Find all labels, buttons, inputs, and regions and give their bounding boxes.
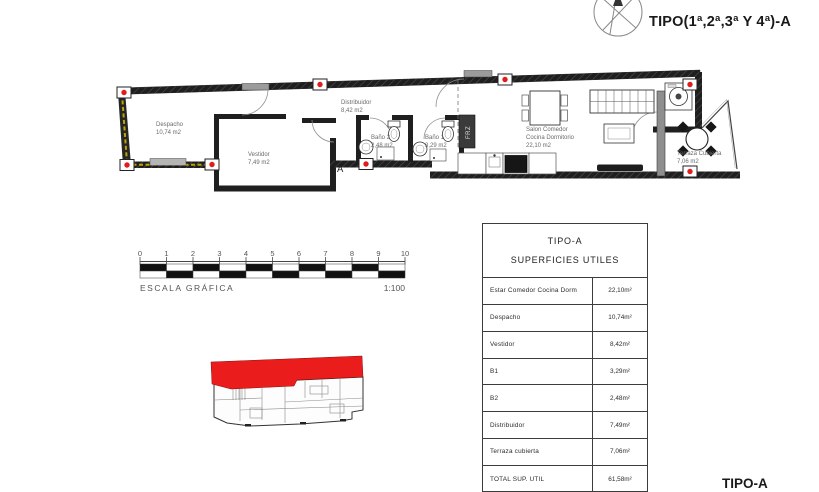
row-value: 10,74m² <box>592 305 647 331</box>
row-label: B1 <box>483 359 592 385</box>
bathroom-fixtures <box>359 121 454 161</box>
tv-sideboard <box>593 165 648 173</box>
room-label: Terraza Cubierta <box>677 151 722 157</box>
sheet-title: TIPO(1ª,2ª,3ª Y 4ª)-A <box>649 14 791 30</box>
column-marker <box>120 160 134 171</box>
scale-bar-blocks <box>140 264 405 278</box>
room-label: Baño 1 <box>425 135 445 141</box>
floor-plan-drawing: FRZ <box>0 0 819 492</box>
svg-text:5: 5 <box>270 249 274 258</box>
table-row: TOTAL SUP. UTIL 61,58m² <box>483 466 647 492</box>
drawing-sheet: FRZ <box>0 0 819 492</box>
room-area: 7,49 m2 <box>248 160 270 166</box>
shower-tray <box>430 149 446 161</box>
room-area: 10,74 m2 <box>156 130 182 136</box>
row-label: Distribuidor <box>483 412 592 438</box>
table-row: Vestidor 8,42m² <box>483 332 647 359</box>
column-marker <box>117 87 131 98</box>
svg-text:4: 4 <box>244 249 248 258</box>
table-row: B1 3,29m² <box>483 359 647 386</box>
fridge: FRZ <box>459 115 475 148</box>
row-value: 22,10m² <box>592 278 647 304</box>
row-label: Estar Comedor Cocina Dorm <box>483 278 592 304</box>
column-marker <box>205 159 219 170</box>
column-marker <box>359 159 373 170</box>
scale-bar-label: ESCALA GRÁFICA <box>140 283 234 293</box>
column-marker <box>683 79 697 90</box>
svg-text:9: 9 <box>376 249 380 258</box>
row-label: Terraza cubierta <box>483 439 592 465</box>
compass-icon <box>594 0 642 36</box>
room-area: 2,48 m2 <box>371 143 393 149</box>
row-value: 3,29m² <box>592 359 647 385</box>
terrace-table <box>686 128 708 150</box>
type-footer-label: TIPO-A <box>722 476 768 491</box>
room-area: 3,29 m2 <box>425 143 447 149</box>
table-row: Distribuidor 7,49m² <box>483 412 647 439</box>
side-table <box>604 124 634 143</box>
kitchen-counter <box>458 153 556 174</box>
svg-text:0: 0 <box>138 249 142 258</box>
svg-text:1: 1 <box>164 249 168 258</box>
scale-bar: 01 23 45 67 89 10 ESCALA GRÁFICA 1:100 <box>138 249 409 293</box>
svg-text:3: 3 <box>217 249 221 258</box>
row-label: TOTAL SUP. UTIL <box>483 466 592 492</box>
table-row: B2 2,48m² <box>483 385 647 412</box>
scale-bar-ticks: 01 23 45 67 89 10 <box>138 249 409 258</box>
table-row: Estar Comedor Cocina Dorm 22,10m² <box>483 278 647 305</box>
kitchen-sink <box>489 157 500 167</box>
areas-table-title: TIPO-A <box>548 236 583 246</box>
row-value: 61,58m² <box>592 466 647 492</box>
row-value: 7,49m² <box>592 412 647 438</box>
areas-table: TIPO-A SUPERFICIES UTILES Estar Comedor … <box>482 223 648 492</box>
room-label: Distribuidor <box>341 100 371 106</box>
svg-text:2: 2 <box>191 249 195 258</box>
dining-table <box>522 91 568 125</box>
row-label: Vestidor <box>483 332 592 358</box>
row-value: 2,48m² <box>592 385 647 411</box>
table-row: Despacho 10,74m² <box>483 305 647 332</box>
room-area: 7,06 m2 <box>677 159 699 165</box>
room-area: 8,42 m2 <box>341 108 363 114</box>
room-label: Cocina Dormitorio <box>526 135 575 141</box>
section-marker-label: A <box>337 164 344 175</box>
svg-text:8: 8 <box>350 249 354 258</box>
room-label: Salon Comedor <box>526 127 568 133</box>
svg-text:10: 10 <box>401 249 409 258</box>
room-label: Baño 2 <box>371 135 391 141</box>
row-value: 7,06m² <box>592 439 647 465</box>
svg-text:6: 6 <box>297 249 301 258</box>
stove <box>505 156 527 173</box>
column-marker <box>683 166 697 177</box>
fridge-label: FRZ <box>466 126 472 139</box>
svg-text:7: 7 <box>323 249 327 258</box>
areas-table-subtitle: SUPERFICIES UTILES <box>511 255 619 265</box>
column-marker <box>498 74 512 85</box>
bed <box>590 90 654 113</box>
room-area: 22,10 m2 <box>526 143 552 149</box>
room-label: Vestidor <box>248 152 270 158</box>
areas-table-header: TIPO-A SUPERFICIES UTILES <box>483 224 647 278</box>
walls <box>117 70 740 192</box>
table-row: Terraza cubierta 7,06m² <box>483 439 647 466</box>
room-label: Despacho <box>156 122 184 128</box>
key-plan <box>211 356 363 427</box>
row-label: Despacho <box>483 305 592 331</box>
row-value: 8,42m² <box>592 332 647 358</box>
scale-ratio: 1:100 <box>384 283 406 293</box>
row-label: B2 <box>483 385 592 411</box>
column-marker <box>313 79 327 90</box>
